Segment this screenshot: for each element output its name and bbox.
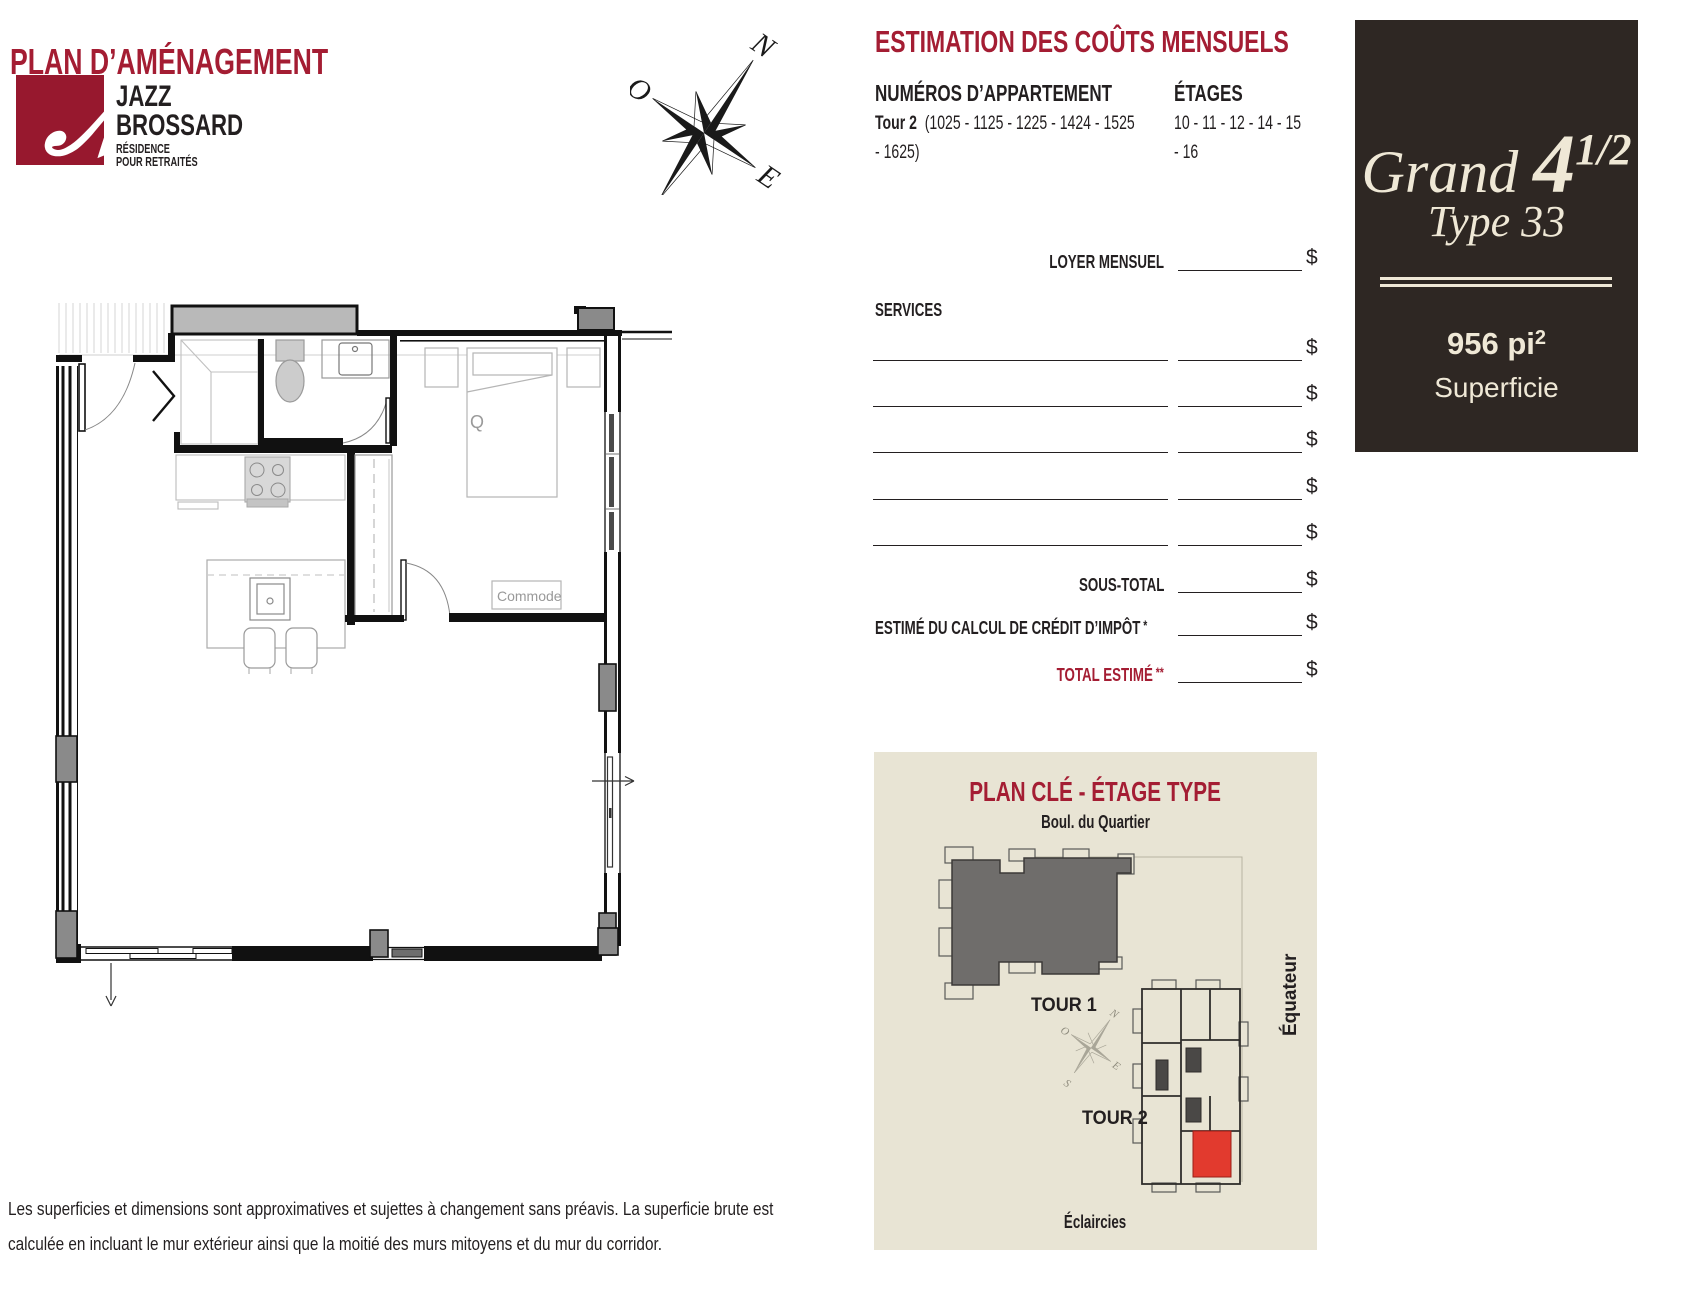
svg-text:E: E xyxy=(1109,1059,1122,1073)
svg-text:O: O xyxy=(1058,1024,1071,1038)
svg-text:TOUR 1: TOUR 1 xyxy=(1031,994,1097,1016)
svg-text:S: S xyxy=(1061,1077,1073,1090)
svg-text:Équateur: Équateur xyxy=(1279,953,1301,1036)
svg-text:Commode: Commode xyxy=(497,588,562,604)
svg-text:N: N xyxy=(1107,1006,1121,1021)
svg-text:TOUR 2: TOUR 2 xyxy=(1082,1107,1148,1129)
svg-text:Q: Q xyxy=(470,412,484,432)
